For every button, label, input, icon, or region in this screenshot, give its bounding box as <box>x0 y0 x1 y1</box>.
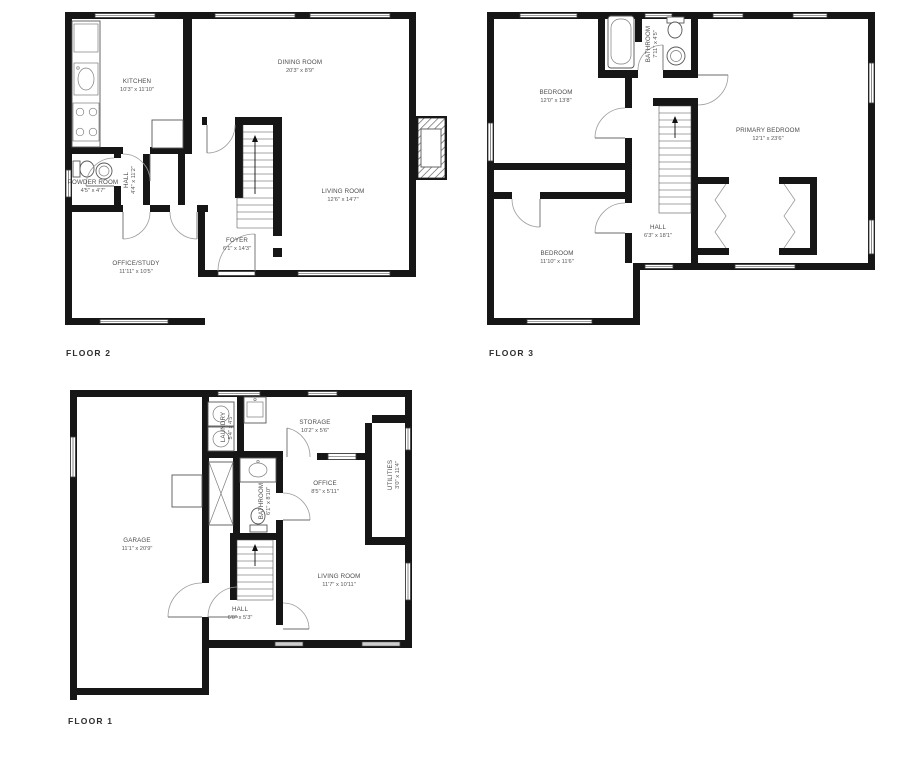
floor3-bedroom-bottom-label: BEDROOM <box>540 250 573 257</box>
floor1-bathroom-dims: 6'1" x 8'10" <box>266 487 272 515</box>
floor-1-caption: FLOOR 1 <box>68 716 113 726</box>
floor2-office-dims: 11'11" x 10'5" <box>119 269 153 275</box>
floor-2-caption: FLOOR 2 <box>66 348 111 358</box>
floor2-office-label: OFFICE/STUDY <box>112 260 159 267</box>
floorplan-canvas: KITCHEN 10'3" x 11'10" DINING ROOM 20'3"… <box>0 0 904 774</box>
toilet-icon <box>250 525 267 532</box>
floor1-storage-dims: 10'2" x 5'6" <box>301 428 329 434</box>
floor2-powder-label: POWDER ROOM <box>68 179 118 186</box>
floor2-walls <box>65 12 416 325</box>
floor2-foyer-dims: 6'1" x 14'3" <box>223 246 251 252</box>
water-heater-icon <box>172 475 202 507</box>
floor1-utilities-label-group: UTILITIES 3'0" x 11'4" <box>387 460 401 490</box>
closet-bifold-icon <box>715 184 726 248</box>
floor3-bathroom-label-group: BATHROOM 7'11" x 4'5" <box>645 26 659 63</box>
floor2-foyer-label: FOYER <box>226 237 248 244</box>
floor3-bedroom-top-dims: 12'0" x 13'8" <box>540 98 571 104</box>
floor2-kitchen-label: KITCHEN <box>123 78 151 85</box>
floor1-hall-label: HALL <box>232 606 248 613</box>
floor-1-plan: GARAGE 11'1" x 20'9" STORAGE 10'2" x 5'6… <box>62 385 416 705</box>
floor2-hall-label-group: HALL 4'4" x 11'2" <box>123 166 137 194</box>
floor1-laundry-dims: 5'4" x 4'5" <box>228 415 234 440</box>
floor1-hall-dims: 6'0" x 5'3" <box>228 615 253 621</box>
floor3-bathroom-dims: 7'11" x 4'5" <box>653 30 659 58</box>
floor-2-plan: KITCHEN 10'3" x 11'10" DINING ROOM 20'3"… <box>60 8 452 330</box>
floor3-doors <box>512 45 795 248</box>
sink-icon <box>667 47 685 65</box>
floor1-garage-dims: 11'1" x 20'9" <box>122 546 153 552</box>
floor-3-caption: FLOOR 3 <box>489 348 534 358</box>
floor2-room-labels: KITCHEN 10'3" x 11'10" DINING ROOM 20'3"… <box>68 59 365 275</box>
floor2-powder-dims: 4'5" x 4'7" <box>81 188 106 194</box>
floor1-living-label: LIVING ROOM <box>318 573 361 580</box>
floor1-walls <box>70 390 412 700</box>
sink-icon <box>96 163 112 179</box>
toilet-icon <box>73 161 80 177</box>
counter-peninsula <box>152 120 183 148</box>
floor3-stairs-icon <box>659 106 691 213</box>
bathroom-sink-icon <box>240 458 276 482</box>
floor1-utilities-dims: 3'0" x 11'4" <box>395 461 401 489</box>
floor2-kitchen-dims: 10'3" x 11'10" <box>120 87 154 93</box>
floor1-storage-label: STORAGE <box>299 419 330 426</box>
floor2-living-dims: 12'6" x 14'7" <box>327 197 358 203</box>
floor1-stairs-icon <box>237 540 273 600</box>
floor1-utilities-label: UTILITIES <box>387 460 394 490</box>
floor-3-plan: BEDROOM 12'0" x 13'8" PRIMARY BEDROOM 12… <box>483 8 879 330</box>
floor1-garage-label: GARAGE <box>123 537 150 544</box>
floor1-room-labels: GARAGE 11'1" x 20'9" STORAGE 10'2" x 5'6… <box>122 412 401 621</box>
floor3-bedroom-top-label: BEDROOM <box>539 89 572 96</box>
floor1-office-dims: 8'5" x 5'11" <box>311 489 339 495</box>
floor1-office-label: OFFICE <box>313 480 337 487</box>
floor1-bathroom-label: BATHROOM <box>258 483 265 520</box>
floor3-bedroom-bottom-dims: 11'10" x 11'6" <box>540 259 574 265</box>
floor2-dining-dims: 20'3" x 8'9" <box>286 68 314 74</box>
floor3-primary-dims: 12'1" x 23'6" <box>752 136 783 142</box>
fireplace-icon <box>416 116 447 180</box>
floor3-hall-dims: 6'3" x 18'1" <box>644 233 672 239</box>
floor2-hall-label: HALL <box>123 172 130 188</box>
closet-bifold-icon <box>784 184 795 248</box>
floor1-laundry-label: LAUNDRY <box>220 412 227 443</box>
floor1-living-dims: 11'7" x 10'11" <box>322 582 356 588</box>
floor3-primary-label: PRIMARY BEDROOM <box>736 127 800 134</box>
floor2-dining-label: DINING ROOM <box>278 59 322 66</box>
floor3-bathroom-label: BATHROOM <box>645 26 652 63</box>
floor2-hall-dims: 4'4" x 11'2" <box>131 166 137 194</box>
powder-room-fixtures <box>73 161 112 179</box>
floor2-living-label: LIVING ROOM <box>322 188 365 195</box>
floor3-hall-label: HALL <box>650 224 666 231</box>
